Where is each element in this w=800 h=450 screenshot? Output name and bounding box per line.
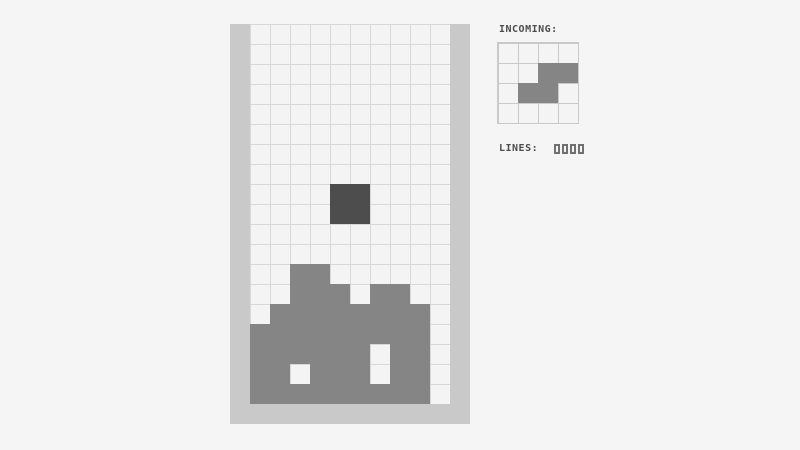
stack-block-cell — [310, 304, 330, 324]
active-piece-cell — [330, 184, 350, 204]
stack-block-cell — [290, 264, 310, 284]
stack-block-cell — [290, 344, 310, 364]
incoming-label: INCOMING: — [499, 25, 558, 35]
incoming-piece-cell — [558, 63, 578, 83]
active-piece-cell — [350, 204, 370, 224]
active-piece-cell — [350, 184, 370, 204]
stack-block-cell — [390, 384, 410, 404]
stack-block-cell — [410, 364, 430, 384]
stack-block-cell — [250, 384, 270, 404]
board-frame — [230, 24, 470, 424]
stack-block-cell — [270, 364, 290, 384]
stack-block-cell — [390, 344, 410, 364]
stack-block-cell — [410, 304, 430, 324]
stack-block-cell — [350, 304, 370, 324]
stack-block-cell — [290, 384, 310, 404]
active-piece-cell — [330, 204, 350, 224]
stack-block-cell — [310, 264, 330, 284]
lines-digit-zero — [562, 144, 568, 154]
stack-block-cell — [370, 324, 390, 344]
stack-block-cell — [350, 364, 370, 384]
lines-digit-zero — [554, 144, 560, 154]
stack-block-cell — [330, 384, 350, 404]
stack-block-cell — [410, 344, 430, 364]
stack-block-cell — [330, 344, 350, 364]
stack-block-cell — [250, 324, 270, 344]
stack-block-cell — [270, 384, 290, 404]
stack-block-cell — [290, 284, 310, 304]
incoming-piece-cell — [538, 63, 558, 83]
stack-block-cell — [410, 384, 430, 404]
stack-block-cell — [290, 324, 310, 344]
stack-block-cell — [410, 324, 430, 344]
stack-block-cell — [370, 304, 390, 324]
stack-block-cell — [330, 324, 350, 344]
tetris-game-screen: INCOMING: LINES: — [0, 0, 800, 450]
incoming-piece-cell — [518, 83, 538, 103]
stack-block-cell — [370, 284, 390, 304]
stack-block-cell — [270, 304, 290, 324]
stack-block-cell — [390, 284, 410, 304]
stack-block-cell — [330, 364, 350, 384]
stack-block-cell — [310, 344, 330, 364]
stack-block-cell — [310, 324, 330, 344]
stack-block-cell — [270, 324, 290, 344]
stack-block-cell — [330, 304, 350, 324]
lines-digit-zero — [578, 144, 584, 154]
incoming-piece-cell — [538, 83, 558, 103]
stack-block-cell — [350, 344, 370, 364]
stack-block-cell — [370, 384, 390, 404]
stack-block-cell — [310, 384, 330, 404]
playfield[interactable] — [250, 24, 450, 404]
stack-block-cell — [390, 304, 410, 324]
stack-block-cell — [390, 364, 410, 384]
stack-block-cell — [310, 284, 330, 304]
stack-block-cell — [330, 284, 350, 304]
stack-block-cell — [310, 364, 330, 384]
stack-block-cell — [390, 324, 410, 344]
stack-block-cell — [250, 364, 270, 384]
lines-digit-zero — [570, 144, 576, 154]
next-piece-preview — [497, 42, 579, 124]
lines-counter — [554, 144, 586, 154]
stack-block-cell — [270, 344, 290, 364]
lines-label: LINES: — [499, 144, 538, 154]
stack-block-cell — [350, 384, 370, 404]
stack-block-cell — [290, 304, 310, 324]
stack-block-cell — [350, 324, 370, 344]
stack-block-cell — [250, 344, 270, 364]
